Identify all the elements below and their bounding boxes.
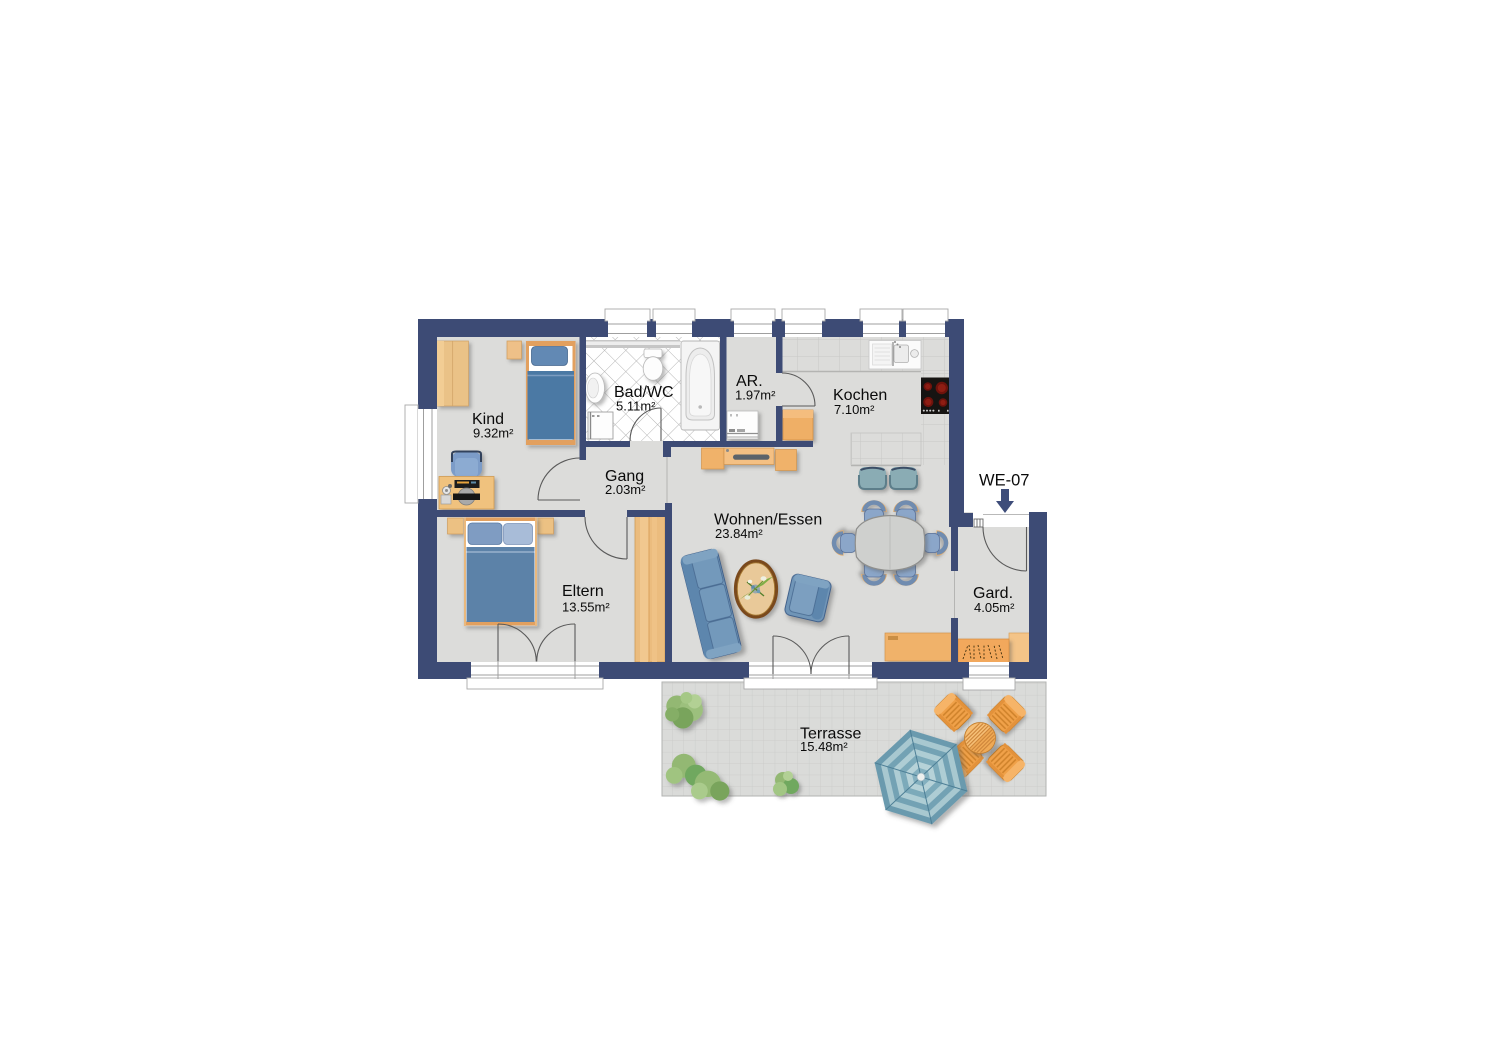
svg-text:7.10m²: 7.10m² xyxy=(834,402,875,417)
svg-text:15.48m²: 15.48m² xyxy=(800,739,848,754)
svg-text:2.03m²: 2.03m² xyxy=(605,482,646,497)
svg-text:13.55m²: 13.55m² xyxy=(562,600,610,615)
svg-text:9.32m²: 9.32m² xyxy=(473,426,514,441)
svg-text:23.84m²: 23.84m² xyxy=(715,526,763,541)
svg-text:WE-07: WE-07 xyxy=(979,472,1029,490)
svg-text:Eltern: Eltern xyxy=(562,583,604,600)
svg-text:5.11m²: 5.11m² xyxy=(616,399,656,414)
svg-text:1.97m²: 1.97m² xyxy=(735,388,776,403)
svg-text:4.05m²: 4.05m² xyxy=(974,600,1015,615)
